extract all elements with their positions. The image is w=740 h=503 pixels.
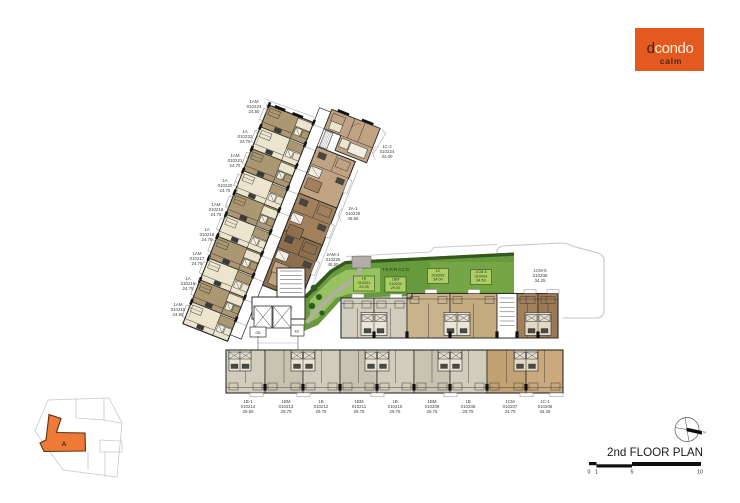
svg-text:2nd FLOOR PLAN: 2nd FLOOR PLAN (607, 446, 703, 459)
svg-text:5: 5 (631, 470, 634, 476)
svg-text:EE: EE (295, 330, 300, 334)
svg-text:1CM-501020434.50: 1CM-501020434.50 (475, 270, 488, 283)
svg-text:GB: GB (255, 331, 261, 335)
svg-text:1: 1 (595, 470, 598, 476)
svg-text:calm: calm (660, 56, 683, 66)
svg-text:0: 0 (588, 470, 591, 476)
svg-text:dcondo: dcondo (647, 40, 694, 57)
svg-text:A: A (62, 441, 67, 448)
svg-text:TERRACE: TERRACE (382, 267, 410, 273)
svg-text:N: N (703, 430, 706, 435)
svg-text:10: 10 (697, 470, 703, 476)
